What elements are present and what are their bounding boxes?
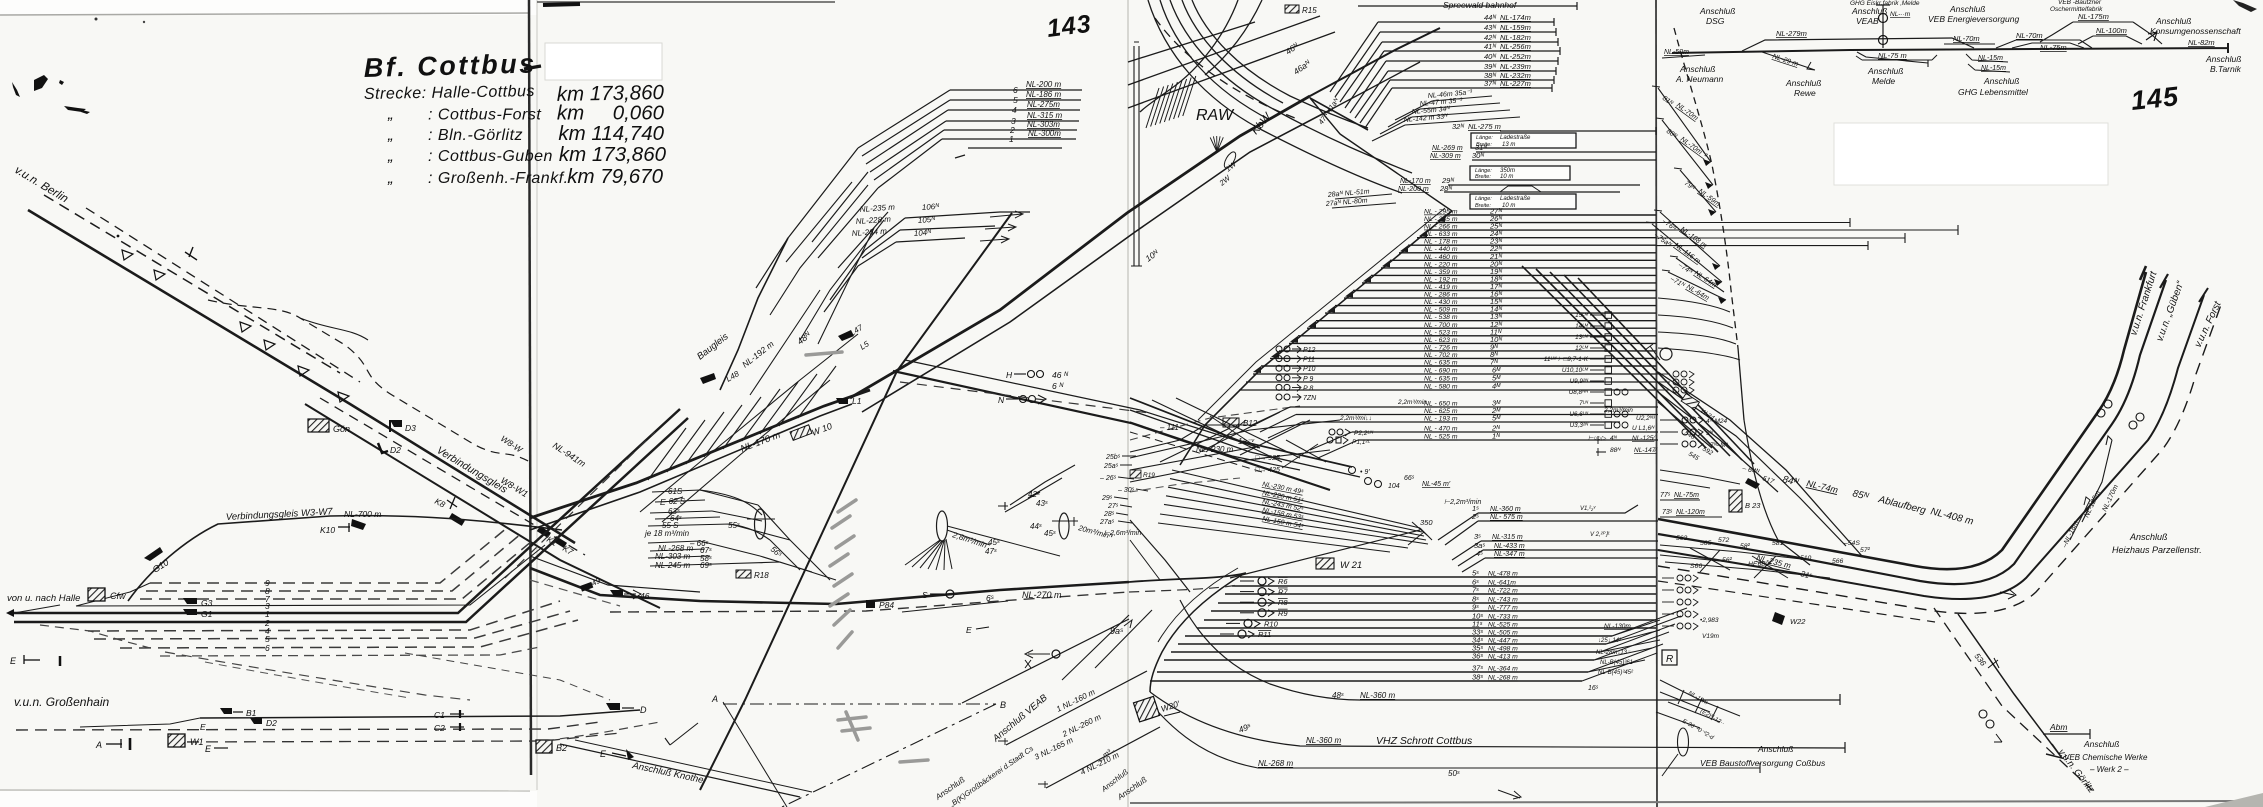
svg-text:88ᴺ: 88ᴺ: [1610, 447, 1621, 454]
svg-text:NL-15m: NL-15m: [1978, 55, 2003, 62]
svg-text:NL - 538 m: NL - 538 m: [1424, 314, 1458, 321]
svg-text:B1: B1: [246, 708, 257, 718]
svg-text:NL-360 m: NL-360 m: [1490, 506, 1521, 513]
svg-text:NL - 470 m: NL - 470 m: [1424, 426, 1458, 433]
svg-text:NL-447 m: NL-447 m: [1488, 638, 1518, 645]
svg-text:NL-147⁄: NL-147⁄: [1634, 447, 1658, 454]
svg-text:– 30ˢ: – 30ˢ: [1117, 487, 1135, 494]
svg-text:NL-269 m: NL-269 m: [1432, 145, 1463, 152]
svg-text:NL-315 m: NL-315 m: [1027, 111, 1062, 120]
svg-text:69ˢ: 69ˢ: [700, 561, 712, 570]
svg-text:104: 104: [1388, 483, 1400, 490]
svg-text:14ᴸᴹ: 14ᴸᴹ: [1575, 323, 1588, 330]
svg-text:6: 6: [265, 643, 270, 653]
svg-text:C2: C2: [434, 723, 445, 733]
svg-text:5ˢ: 5ˢ: [1472, 569, 1479, 578]
svg-text:„: „: [387, 170, 393, 187]
svg-text:NL - 286 m: NL - 286 m: [1424, 292, 1458, 299]
svg-text:NL - 700 m: NL - 700 m: [1424, 322, 1458, 329]
svg-text:46 ᴺ: 46 ᴺ: [1052, 370, 1069, 380]
svg-text:25bˢ: 25bˢ: [1105, 454, 1121, 461]
svg-text:6ˢ: 6ˢ: [986, 593, 994, 603]
svg-text:1ᴺ: 1ᴺ: [1492, 432, 1500, 441]
svg-text:km 173,860: km 173,860: [559, 143, 667, 166]
svg-text:44ᴺ: 44ᴺ: [1484, 13, 1496, 22]
svg-text:NL-300m: NL-300m: [1028, 129, 1061, 138]
svg-text:„: „: [387, 106, 393, 123]
svg-text:NL-413 m: NL-413 m: [1488, 654, 1518, 661]
svg-text:NL-279m: NL-279m: [1776, 29, 1807, 38]
svg-text:VEB Chemische Werke: VEB Chemische Werke: [2064, 753, 2148, 762]
svg-text:45ˢ: 45ˢ: [988, 538, 1000, 547]
svg-text:P 8: P 8: [1303, 385, 1313, 392]
svg-text:R10: R10: [1264, 619, 1279, 628]
svg-text:7ˢ: 7ˢ: [1472, 586, 1479, 595]
svg-text:NL-75 m: NL-75 m: [1878, 51, 1907, 60]
svg-text:Anschluß: Anschluß: [2083, 739, 2119, 749]
svg-text:NL - 635 m: NL - 635 m: [1424, 376, 1458, 383]
svg-text:G3: G3: [201, 598, 213, 608]
svg-text:50ˢ: 50ˢ: [1448, 769, 1460, 778]
svg-text:– 111: – 111: [1159, 423, 1179, 432]
svg-text:D2: D2: [390, 445, 401, 455]
svg-text:NL - 419 m: NL - 419 m: [1424, 284, 1458, 291]
svg-text:NL-70m: NL-70m: [1953, 34, 1980, 43]
svg-text:: Bln.-Görlitz: : Bln.-Görlitz: [428, 127, 523, 144]
svg-text:NL-722 m: NL-722 m: [1488, 588, 1518, 595]
svg-text:⊢○○▷: ⊢○○▷: [1588, 435, 1607, 442]
svg-text:NL-364 m: NL-364 m: [1488, 666, 1518, 673]
svg-text:U2,2ᴺ³: U2,2ᴺ³: [1636, 415, 1656, 422]
svg-text:NL-182m: NL-182m: [1500, 33, 1531, 42]
svg-text:57²: 57²: [1860, 547, 1871, 554]
svg-text:7ᴸᴺ: 7ᴸᴺ: [1579, 400, 1589, 407]
svg-text:NL-641m: NL-641m: [1488, 580, 1516, 587]
svg-text:44ˢ: 44ˢ: [1030, 522, 1042, 531]
svg-text:Breite:: Breite:: [1475, 203, 1491, 209]
svg-text:NL - 525 m: NL - 525 m: [1424, 434, 1458, 441]
svg-text:NL - 726 m: NL - 726 m: [1424, 344, 1458, 351]
svg-text:563: 563: [1676, 535, 1688, 542]
svg-text:Melde: Melde: [1872, 76, 1895, 86]
svg-text:A: A: [95, 740, 102, 750]
svg-text:A: A: [711, 694, 718, 704]
svg-text:S: S: [922, 590, 928, 600]
svg-text:NL-268 m: NL-268 m: [1258, 759, 1293, 768]
svg-text:3ˢ: 3ˢ: [1474, 532, 1481, 541]
svg-text:NL - 295 m: NL - 295 m: [1424, 209, 1458, 216]
svg-text:P10: P10: [1303, 366, 1316, 373]
svg-text:U3,3²ᴺ: U3,3²ᴺ: [1570, 422, 1589, 429]
svg-text:U L1,6ᴺ: U L1,6ᴺ: [1632, 425, 1655, 432]
svg-text:NL-268 m: NL-268 m: [1488, 675, 1518, 682]
svg-text:NL-B(45)³61: NL-B(45)³61: [1600, 660, 1633, 666]
svg-text:– 26ˢ: – 26ˢ: [1099, 475, 1117, 482]
svg-text:B: B: [1000, 700, 1006, 710]
svg-text:NL-256m: NL-256m: [1500, 42, 1531, 51]
svg-text:Bf. Cottbus: Bf. Cottbus: [363, 48, 537, 83]
svg-text:Anschluß: Anschluß: [1851, 6, 1887, 16]
svg-text:510: 510: [1800, 555, 1812, 562]
svg-text:HE680²: HE680²: [1748, 561, 1772, 568]
svg-text:NL-239m: NL-239m: [1500, 62, 1531, 71]
svg-text:von u. nach Halle: von u. nach Halle: [7, 593, 80, 604]
svg-text:⊢2,6m³/min: ⊢2,6m³/min: [1104, 530, 1141, 537]
svg-text:66ˢ: 66ˢ: [1404, 475, 1415, 482]
svg-text:E: E: [600, 749, 607, 759]
svg-text:77ˢ: 77ˢ: [1660, 492, 1671, 499]
svg-text:P12: P12: [1303, 347, 1316, 354]
svg-text:10 m: 10 m: [1502, 203, 1515, 209]
svg-text:Anschluß: Anschluß: [1785, 78, 1821, 88]
svg-text:NL-245 m: NL-245 m: [655, 561, 690, 570]
svg-text:R15: R15: [1302, 6, 1317, 15]
svg-text:GHG Eiskr.fabrik ‚Melde: GHG Eiskr.fabrik ‚Melde: [1850, 0, 1920, 7]
svg-text:NL - 580 m: NL - 580 m: [1424, 384, 1458, 391]
svg-text:NL-45 m′: NL-45 m′: [1422, 481, 1451, 488]
svg-text:NL - 359 m: NL - 359 m: [1424, 269, 1458, 276]
svg-text:V 2,²ᴾ⁆¹: V 2,²ᴾ⁆¹: [1590, 531, 1610, 538]
svg-text:572: 572: [1718, 537, 1730, 544]
svg-text:NL-498 m: NL-498 m: [1488, 646, 1518, 653]
svg-text:VHZ Schrott Cottbus: VHZ Schrott Cottbus: [1376, 735, 1473, 747]
svg-text:28ᴺ: 28ᴺ: [1439, 184, 1452, 193]
svg-text:43ᴺ: 43ᴺ: [1484, 23, 1496, 32]
svg-text:: Großenh.-Frankf.: : Großenh.-Frankf.: [428, 170, 569, 187]
svg-text:NL-82m: NL-82m: [2188, 38, 2215, 47]
svg-text:6: 6: [1013, 85, 1018, 95]
svg-text:E: E: [205, 744, 212, 754]
svg-text:Gön: Gön: [333, 424, 350, 434]
svg-text:km 79,670: km 79,670: [567, 165, 663, 188]
svg-text:• 9′: • 9′: [1360, 469, 1370, 476]
svg-text:NL-700 m: NL-700 m: [344, 509, 381, 519]
svg-text:NL-315 m: NL-315 m: [1492, 534, 1523, 541]
svg-text:Heizhaus Parzellenstr.: Heizhaus Parzellenstr.: [2112, 545, 2202, 555]
svg-text:NL-303 m: NL-303 m: [655, 552, 690, 561]
svg-text:NL-303m: NL-303m: [1027, 120, 1060, 129]
svg-text:VEAB: VEAB: [1856, 16, 1879, 26]
svg-text:27aˢ: 27aˢ: [1099, 519, 1115, 526]
svg-text:4ᴹ: 4ᴹ: [1492, 382, 1501, 391]
svg-text:NL-186 m: NL-186 m: [1026, 90, 1061, 99]
svg-text:„: „: [387, 148, 393, 165]
svg-text:4: 4: [1012, 105, 1017, 115]
svg-text:61S: 61S: [668, 487, 683, 496]
svg-text:Anschluß: Anschluß: [2155, 16, 2191, 26]
svg-text:Anschluß: Anschluß: [1679, 64, 1715, 74]
svg-text:DSG: DSG: [1706, 16, 1725, 26]
svg-text:16ˢ: 16ˢ: [1588, 685, 1599, 692]
svg-text:W1: W1: [190, 737, 204, 747]
svg-text:145: 145: [2129, 81, 2180, 116]
svg-text:NL-360 m: NL-360 m: [1360, 691, 1395, 700]
svg-text:NL-75m: NL-75m: [2040, 43, 2067, 52]
svg-text:E: E: [200, 722, 206, 732]
svg-text:RAW: RAW: [1196, 107, 1235, 124]
svg-text:je 18 m³/min: je 18 m³/min: [644, 529, 690, 538]
svg-text:–54S: –54S: [1843, 540, 1860, 547]
svg-text:Spreewald bahnhof: Spreewald bahnhof: [1443, 0, 1518, 10]
svg-text:Ladestraße: Ladestraße: [1500, 196, 1531, 202]
svg-text:Konsumgenossenschaft: Konsumgenossenschaft: [2150, 26, 2241, 36]
svg-text:NL-··m: NL-··m: [1890, 11, 1911, 18]
svg-text:NL-505 m: NL-505 m: [1488, 630, 1518, 637]
svg-text:7ZN: 7ZN: [1303, 395, 1317, 402]
svg-text:Anschluß: Anschluß: [2205, 54, 2241, 64]
svg-text:v.u.n. Großenhain: v.u.n. Großenhain: [14, 695, 109, 709]
svg-text:NL-733 m: NL-733 m: [1488, 614, 1518, 621]
svg-text:D2: D2: [266, 718, 277, 728]
svg-text:R9: R9: [1278, 609, 1288, 618]
svg-text:km 114,740: km 114,740: [558, 122, 664, 145]
svg-text:NL-120m: NL-120m: [1676, 509, 1705, 516]
svg-text:Anschluß: Anschluß: [1699, 6, 1735, 16]
svg-text:55ˢ: 55ˢ: [728, 521, 740, 530]
svg-text:Anschluß: Anschluß: [1867, 66, 1903, 76]
svg-text:46: 46: [640, 591, 650, 601]
svg-text:NL - 192 m: NL - 192 m: [1424, 276, 1458, 283]
svg-text:6 ᴺ: 6 ᴺ: [1052, 381, 1064, 391]
svg-text:NL-275 m: NL-275 m: [1468, 122, 1501, 131]
svg-text:Strecke: Halle-Cottbus: Strecke: Halle-Cottbus: [364, 83, 535, 103]
svg-text:25aˢ: 25aˢ: [1103, 463, 1119, 470]
svg-text:H: H: [1006, 370, 1013, 380]
svg-text:NL-227m: NL-227m: [1500, 79, 1531, 88]
svg-text:106ᴺ: 106ᴺ: [922, 202, 941, 212]
svg-text:W 21: W 21: [1340, 560, 1362, 571]
svg-text:R18: R18: [754, 571, 769, 580]
svg-text:15ᴸᴹ: 15ᴸᴹ: [1575, 312, 1588, 319]
svg-text:NL-100m: NL-100m: [2096, 26, 2127, 35]
svg-text:NL - 635 m: NL - 635 m: [1424, 360, 1458, 367]
svg-text:2,2m³/min: 2,2m³/min: [1603, 407, 1633, 414]
svg-text:2,2m³/min: 2,2m³/min: [1397, 399, 1427, 406]
svg-text:29ˢ: 29ˢ: [1101, 495, 1113, 502]
svg-text:13 m: 13 m: [1502, 142, 1515, 148]
svg-text:R7: R7: [1278, 588, 1288, 597]
svg-text:2,2m³/mi↓↓: 2,2m³/mi↓↓: [1339, 415, 1372, 422]
svg-text:NL-70m: NL-70m: [2016, 31, 2043, 40]
svg-text:40ᴺ: 40ᴺ: [1484, 52, 1496, 61]
svg-text:⊢2,2m³/min: ⊢2,2m³/min: [1444, 499, 1481, 506]
svg-text:P1,1²ᴸ: P1,1²ᴸ: [1352, 439, 1371, 446]
svg-text:– Werk 2 –: – Werk 2 –: [2089, 765, 2129, 774]
svg-text:Länge:: Länge:: [1476, 135, 1493, 141]
svg-text:48ˢ: 48ˢ: [1332, 691, 1344, 700]
svg-text:10 m: 10 m: [1500, 174, 1513, 180]
svg-text:NL-743 m: NL-743 m: [1488, 597, 1518, 604]
svg-text:NL-B(45)³45²: NL-B(45)³45²: [1598, 670, 1634, 676]
svg-text:4ᴺ: 4ᴺ: [1610, 435, 1618, 442]
svg-text:G1: G1: [201, 609, 213, 619]
svg-text:42ˢ: 42ˢ: [1028, 490, 1040, 499]
svg-text:NL - 509 m: NL - 509 m: [1424, 307, 1458, 314]
svg-text:NL-275m: NL-275m: [1027, 100, 1060, 109]
svg-text:P2,2ᴸᴺ: P2,2ᴸᴺ: [1354, 430, 1374, 437]
svg-text:58²: 58²: [1740, 543, 1751, 550]
svg-text:NL-159m: NL-159m: [1500, 23, 1531, 32]
svg-text:R19: R19: [1143, 472, 1155, 479]
svg-text:5: 5: [1013, 95, 1018, 105]
svg-text:36ˢ: 36ˢ: [1472, 652, 1483, 661]
svg-text:NL-347 m: NL-347 m: [1494, 551, 1525, 558]
svg-text:NL-777 m: NL-777 m: [1488, 605, 1518, 612]
svg-text:K10: K10: [320, 525, 335, 535]
svg-text:V1,²₂ᵛ: V1,²₂ᵛ: [1580, 506, 1596, 512]
svg-text:– 62 S: – 62 S: [661, 497, 686, 506]
svg-text:47ˢ: 47ˢ: [985, 547, 997, 556]
svg-text:43ˢ: 43ˢ: [1036, 499, 1048, 508]
svg-text:1: 1: [1009, 134, 1014, 144]
svg-text:NL-360 m: NL-360 m: [1306, 736, 1341, 745]
svg-text:•2,983: •2,983: [1700, 617, 1719, 624]
svg-text:143: 143: [1045, 10, 1093, 43]
svg-text:Länge:: Länge:: [1475, 196, 1492, 202]
svg-text:NL - 633 m: NL - 633 m: [1424, 231, 1458, 238]
svg-text:9aˢ: 9aˢ: [1110, 626, 1124, 636]
svg-text:V19m: V19m: [1702, 633, 1720, 640]
svg-text:: Cottbus-Guben: : Cottbus-Guben: [428, 148, 553, 165]
svg-text:11ᴸᴹ ⊢□9,7-1-K: 11ᴸᴹ ⊢□9,7-1-K: [1544, 356, 1589, 363]
svg-text:NL- 575 m: NL- 575 m: [1490, 514, 1523, 521]
svg-text:N: N: [998, 395, 1005, 405]
svg-text:NL - 440 m: NL - 440 m: [1424, 246, 1458, 253]
svg-text:B 23: B 23: [1745, 501, 1761, 510]
svg-text:VEB Baustoffversorgung Coßbus: VEB Baustoffversorgung Coßbus: [1700, 758, 1826, 768]
svg-text:30ᴺ: 30ᴺ: [1472, 151, 1484, 160]
svg-text:Anschluß: Anschluß: [1983, 76, 2019, 86]
svg-text:E: E: [10, 656, 17, 666]
svg-text:NL-130m: NL-130m: [1604, 623, 1631, 630]
svg-text:13ᴸᴹ: 13ᴸᴹ: [1575, 334, 1588, 341]
svg-text:37ˢ: 37ˢ: [1472, 664, 1483, 673]
svg-text:NL - 625 m: NL - 625 m: [1424, 408, 1458, 415]
svg-text:NL-175m: NL-175m: [2078, 12, 2109, 21]
svg-text:27ˢ: 27ˢ: [1107, 503, 1119, 510]
svg-text:D: D: [640, 705, 647, 715]
svg-text:NL - 623 m: NL - 623 m: [1424, 337, 1458, 344]
svg-text:73ˢ: 73ˢ: [1662, 509, 1673, 516]
svg-text:Anschluß: Anschluß: [1757, 744, 1793, 754]
svg-text:NL - 690 m: NL - 690 m: [1424, 368, 1458, 375]
svg-text:NL-270 m: NL-270 m: [1022, 590, 1062, 600]
svg-text:NL-433 m: NL-433 m: [1494, 543, 1525, 550]
svg-text:E: E: [966, 625, 972, 635]
svg-text:581: 581: [1772, 540, 1784, 547]
svg-text:NL - 650 m: NL - 650 m: [1424, 401, 1458, 408]
svg-text:12ᴸᴹ: 12ᴸᴹ: [1575, 345, 1588, 352]
svg-text:NL - 430 m: NL - 430 m: [1424, 299, 1458, 306]
svg-text:NL-478 m: NL-478 m: [1488, 571, 1518, 578]
svg-text:Anschluß: Anschluß: [2129, 532, 2168, 542]
svg-text:NL - 523 m: NL - 523 m: [1424, 329, 1458, 336]
svg-text:Ladestraße: Ladestraße: [1500, 135, 1531, 141]
svg-text:R6: R6: [1278, 577, 1288, 586]
svg-text:NL-309 m: NL-309 m: [1430, 153, 1461, 160]
svg-text:Anschluß: Anschluß: [1949, 4, 1985, 14]
svg-text:B.Tarnik: B.Tarnik: [2210, 64, 2242, 74]
svg-text:NL - 220 m: NL - 220 m: [1424, 261, 1458, 268]
svg-text:104ᴺ: 104ᴺ: [914, 228, 933, 238]
svg-text:32ᴺ: 32ᴺ: [1452, 122, 1464, 131]
svg-text:P11: P11: [1303, 357, 1315, 364]
svg-text:41ᴺ: 41ᴺ: [1484, 42, 1496, 51]
svg-text:↓25↓ 14³: ↓25↓ 14³: [1598, 638, 1622, 644]
svg-text:39ᴺ: 39ᴺ: [1484, 62, 1496, 71]
svg-text:NL-50m: NL-50m: [1664, 49, 1689, 56]
svg-text:Cfw: Cfw: [110, 591, 126, 601]
svg-text:2ˢ: 2ˢ: [1471, 512, 1479, 521]
svg-text:38ˢ: 38ˢ: [1472, 673, 1483, 682]
svg-text:R11: R11: [1258, 630, 1271, 639]
svg-text:56²: 56²: [1722, 557, 1733, 564]
svg-text:566: 566: [1832, 558, 1844, 565]
svg-text:Oschermittelfabrik: Oschermittelfabrik: [2050, 6, 2103, 13]
svg-text:L1: L1: [852, 396, 862, 406]
svg-text:28ˢ: 28ˢ: [1103, 511, 1115, 518]
svg-text:Abm: Abm: [2049, 722, 2067, 732]
svg-text:D3: D3: [405, 423, 416, 433]
svg-text:350: 350: [1420, 518, 1433, 527]
svg-text:NL - 178 m: NL - 178 m: [1424, 239, 1458, 246]
svg-text:37ᴺ: 37ᴺ: [1484, 79, 1496, 88]
svg-text:NL-125⁄: NL-125⁄: [1632, 435, 1656, 442]
svg-text:NL-525 m: NL-525 m: [1488, 622, 1518, 629]
svg-text:A. Neumann: A. Neumann: [1675, 74, 1724, 84]
svg-text:NL-28m↓13⁻: NL-28m↓13⁻: [1596, 650, 1631, 656]
svg-text:NL-200 m: NL-200 m: [1026, 80, 1061, 89]
svg-text:P84: P84: [879, 600, 894, 610]
svg-text:„: „: [387, 127, 393, 144]
svg-text:7ᴺ–M³: 7ᴺ–M³: [1710, 442, 1729, 449]
svg-text:: Cottbus-Forst: : Cottbus-Forst: [428, 107, 541, 124]
svg-text:W22: W22: [1790, 617, 1806, 626]
svg-text:NL - 193 m: NL - 193 m: [1424, 416, 1458, 423]
svg-text:NL-15m: NL-15m: [1981, 65, 2006, 72]
svg-text:NL - 460 m: NL - 460 m: [1424, 254, 1458, 261]
svg-text:9ˢ: 9ˢ: [1472, 603, 1479, 612]
svg-text:C1: C1: [434, 710, 445, 720]
svg-text:GHG Lebensmittel: GHG Lebensmittel: [1958, 87, 2029, 97]
svg-text:NL-75m: NL-75m: [1674, 492, 1699, 499]
svg-text:Rewe: Rewe: [1794, 88, 1816, 98]
svg-text:565: 565: [1700, 540, 1712, 547]
svg-text:105ᴺ: 105ᴺ: [918, 215, 937, 225]
svg-text:R: R: [1666, 654, 1673, 665]
svg-text:NL - 702 m: NL - 702 m: [1424, 352, 1458, 359]
svg-text:U10,10ᴸᴹ: U10,10ᴸᴹ: [1562, 367, 1589, 374]
svg-text:5ᴹ: 5ᴹ: [1492, 414, 1501, 423]
svg-text:VEB Energieversorgung: VEB Energieversorgung: [1928, 14, 2019, 24]
svg-text:NL-252m: NL-252m: [1500, 52, 1531, 61]
svg-text:Breite:: Breite:: [1475, 174, 1491, 180]
svg-text:NL-174m: NL-174m: [1500, 13, 1531, 22]
svg-text:42ᴺ: 42ᴺ: [1484, 33, 1496, 42]
svg-text:45ˢ: 45ˢ: [1044, 529, 1056, 538]
svg-text:4ˢ: 4ˢ: [1476, 549, 1483, 558]
svg-text:3ᴺ: 3ᴺ: [1706, 430, 1714, 437]
